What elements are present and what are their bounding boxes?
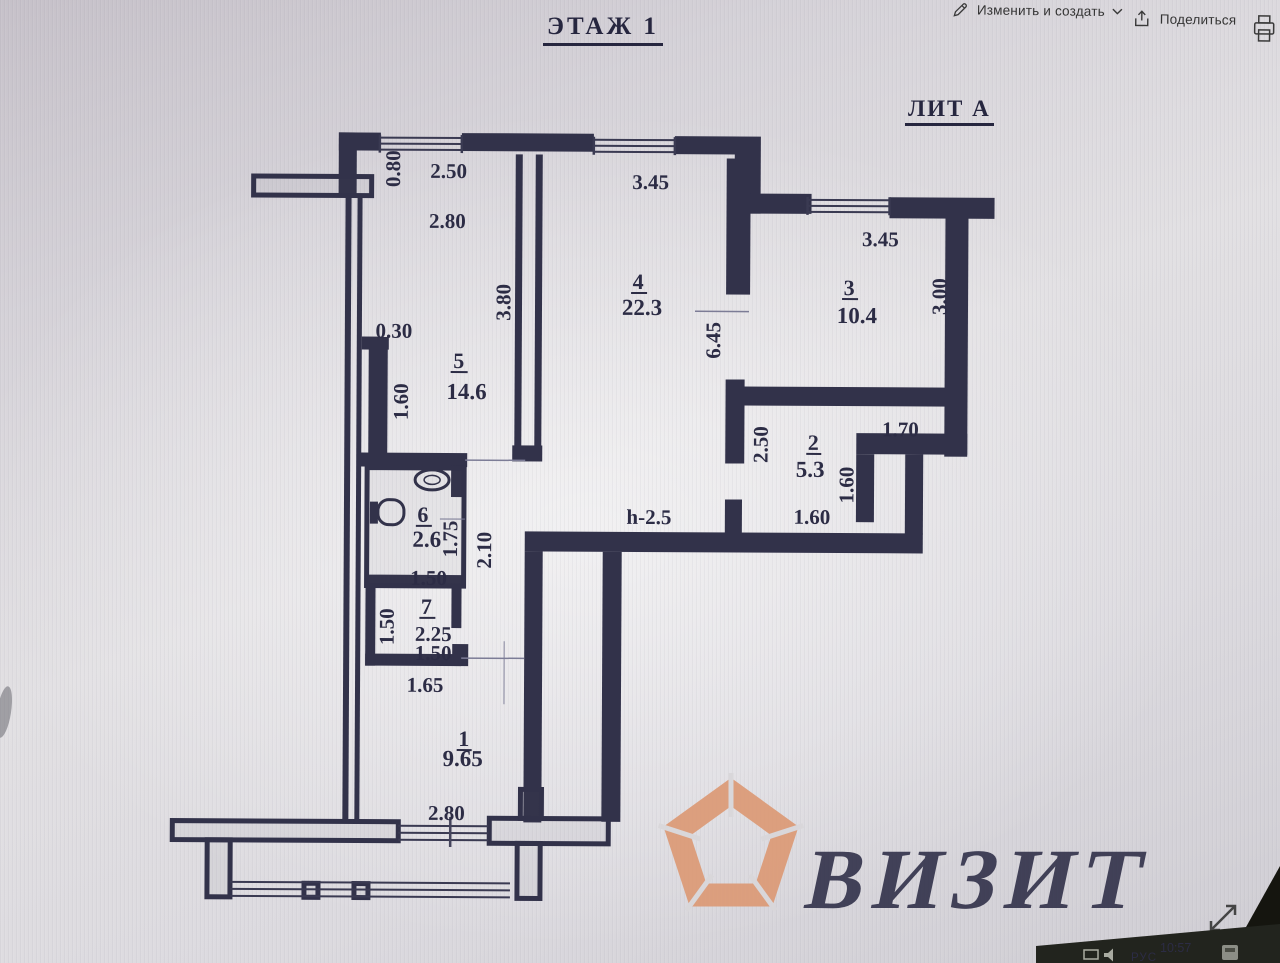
vizit-watermark-text: ВИЗИТ [798, 832, 1162, 927]
room6-number: 6 [417, 502, 428, 527]
room6-area: 2.6 [412, 527, 441, 552]
room4-number: 4 [633, 269, 644, 294]
dim-3-80: 3.80 [491, 284, 515, 321]
dim-1-65: 1.65 [407, 673, 444, 697]
dim-3-00: 3.00 [927, 278, 951, 315]
dim-1-50-vert: 1.50 [375, 608, 399, 645]
room2-number: 2 [808, 430, 819, 455]
resize-arrow-icon[interactable] [1211, 906, 1235, 930]
windows-taskbar [1036, 924, 1280, 963]
dim-1-60-left: 1.60 [389, 383, 413, 420]
dim-3-45-right: 3.45 [862, 227, 899, 251]
dim-1-50-r7: 1.50 [415, 641, 452, 665]
tray-app-icon-detail [1225, 948, 1235, 952]
photographed-monitor-screen: Изменить и создать Поделиться ЭТАЖ 1 ЛИТ… [0, 0, 1280, 963]
dim-6-45: 6.45 [701, 322, 725, 359]
tray-app-icon[interactable] [1222, 945, 1238, 960]
room2-area: 5.3 [796, 457, 825, 482]
dim-2-80-top: 2.80 [429, 209, 466, 233]
dim-3-45-mid: 3.45 [632, 170, 669, 194]
room5-area: 14.6 [446, 379, 486, 404]
dim-0-80: 0.80 [381, 150, 405, 187]
room4-area: 22.3 [622, 295, 662, 320]
room7-number: 7 [421, 594, 432, 619]
dim-2-10: 2.10 [472, 532, 496, 569]
dim-2-50-top: 2.50 [430, 159, 467, 183]
dim-0-30: 0.30 [375, 319, 412, 343]
height-note: h-2.5 [626, 505, 671, 529]
clock[interactable]: 10:57 [1160, 941, 1191, 955]
dim-2-50-vert: 2.50 [749, 426, 773, 463]
vizit-watermark: ВИЗИТ [659, 773, 1162, 927]
room3-area: 10.4 [837, 303, 878, 328]
dim-1-70: 1.70 [882, 417, 919, 441]
dim-1-75: 1.75 [438, 521, 462, 558]
dim-1-60-vert: 1.60 [834, 467, 858, 504]
dim-1-60-horiz: 1.60 [793, 505, 830, 529]
dim-1-50-bath: 1.50 [410, 566, 447, 590]
floor-plan-drawing: 0.80 2.50 2.80 3.45 3.45 3.00 0.30 3.80 … [0, 0, 1280, 963]
window-hatches [230, 134, 890, 899]
room3-number: 3 [844, 275, 855, 300]
dim-2-80-bottom: 2.80 [428, 801, 465, 825]
room5-number: 5 [453, 348, 464, 373]
language-indicator[interactable]: РУС [1131, 952, 1157, 963]
